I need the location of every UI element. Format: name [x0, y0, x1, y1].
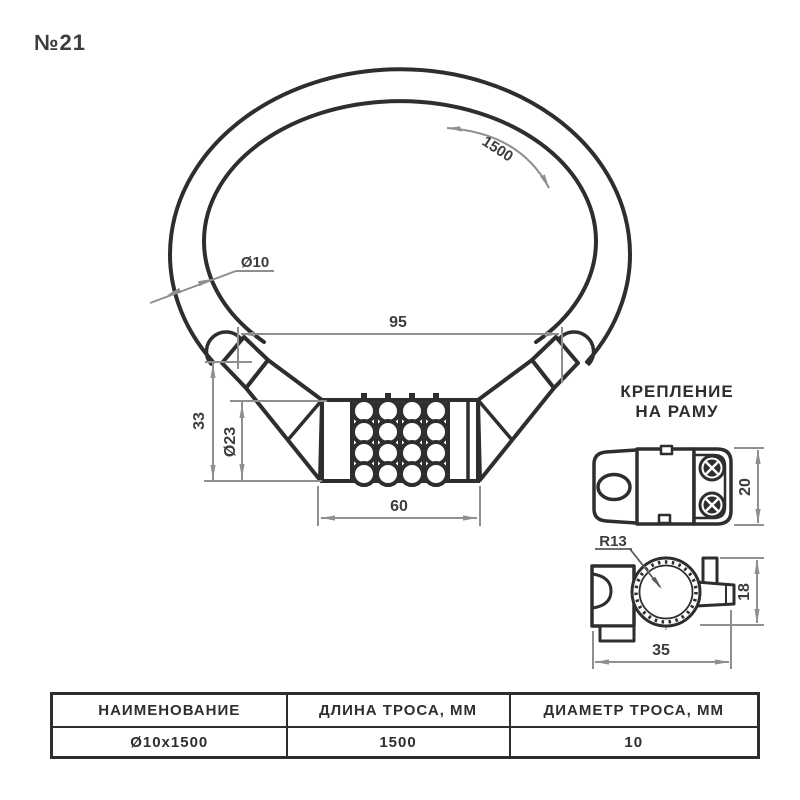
dim-label-o23: Ø23 [222, 427, 239, 457]
dim-label-o10: Ø10 [241, 254, 269, 271]
spec-value-cable-diameter: 10 [510, 727, 759, 758]
mount-tab [703, 558, 717, 584]
drawing-sheet: №21 [0, 0, 800, 800]
drawing-number: №21 [34, 30, 86, 55]
spec-table: НАИМЕНОВАНИЕ ДЛИНА ТРОСА, ММ ДИАМЕТР ТРО… [50, 692, 760, 759]
spec-header-cable-length: ДЛИНА ТРОСА, ММ [287, 694, 510, 728]
dim-label-95: 95 [389, 314, 407, 331]
dimension-cable-length: 1500 [447, 126, 549, 188]
mount-top-view [594, 446, 731, 524]
mount-body-tab-bottom [659, 515, 670, 523]
dim-label-18: 18 [736, 583, 753, 601]
technical-drawing: №21 [0, 0, 800, 800]
dim-label-60: 60 [390, 498, 408, 515]
mount-clip-hole [598, 475, 630, 500]
mount-caption-line1: КРЕПЛЕНИЕ [620, 382, 733, 401]
combination-dials [352, 393, 448, 487]
lock-cone-right [478, 360, 554, 480]
dimension-20: 20 [734, 448, 764, 525]
mount-body-tab-top [661, 446, 672, 454]
dim-label-r13: R13 [599, 533, 627, 550]
mount-barrel [696, 582, 734, 606]
mount-caption-line2: НА РАМУ [635, 402, 718, 421]
dim-label-20: 20 [737, 478, 754, 496]
mount-caption: КРЕПЛЕНИЕ НА РАМУ [620, 382, 733, 421]
spec-header-cable-diameter: ДИАМЕТР ТРОСА, ММ [510, 694, 759, 728]
dim-label-1500: 1500 [479, 133, 516, 165]
spec-value-name: Ø10x1500 [52, 727, 287, 758]
dim-label-35: 35 [652, 642, 670, 659]
spec-header-name: НАИМЕНОВАНИЕ [52, 694, 287, 728]
cable-inner-arc [204, 101, 596, 342]
dim-label-33: 33 [191, 412, 208, 430]
mount-bracket-foot [600, 626, 634, 641]
mount-body [637, 449, 694, 524]
mount-front-view [592, 556, 734, 641]
spec-value-cable-length: 1500 [287, 727, 510, 758]
lock-cone-left [246, 360, 322, 480]
dimension-60: 60 [318, 486, 480, 526]
spec-table-header-row: НАИМЕНОВАНИЕ ДЛИНА ТРОСА, ММ ДИАМЕТР ТРО… [52, 694, 759, 728]
mount-screw-bottom [700, 493, 724, 517]
mount-screw-top [700, 456, 724, 480]
spec-table-value-row: Ø10x1500 1500 10 [52, 727, 759, 758]
mount-knob-outer [632, 558, 700, 626]
